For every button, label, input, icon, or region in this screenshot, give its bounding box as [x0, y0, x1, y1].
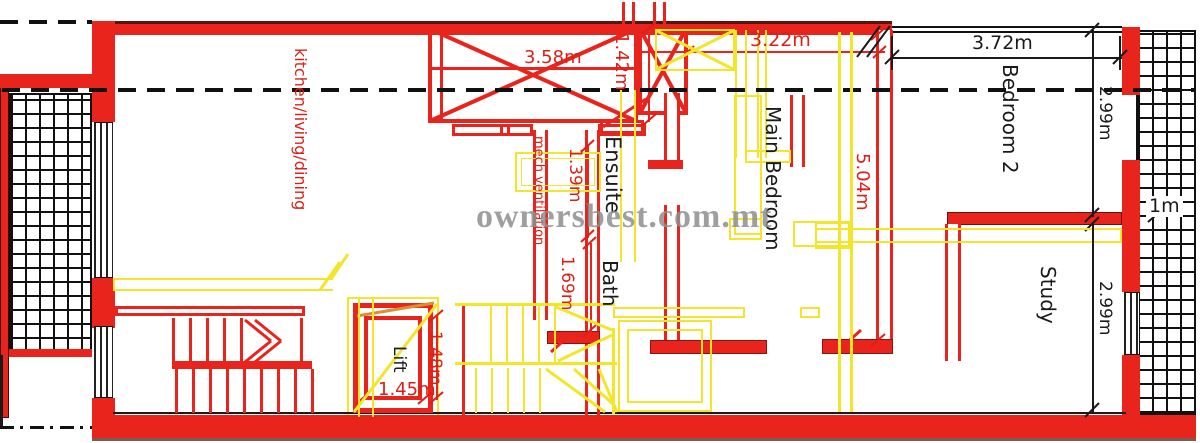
- dim-label-142: 1.42m: [612, 33, 630, 91]
- wall-bottom: [92, 415, 1196, 441]
- wall-stub: [648, 160, 683, 169]
- wall-bed2-study: [947, 212, 1122, 225]
- stair-tread-yellow: [475, 368, 477, 413]
- wall-stub: [663, 2, 666, 24]
- wall-right-mid: [1122, 160, 1140, 292]
- room-label-bath: Bath: [600, 260, 620, 307]
- party-wall-hatch-left: [9, 93, 92, 355]
- window-left-upper: [94, 122, 113, 278]
- stair-tread: [240, 318, 243, 362]
- dim-ext: [1119, 36, 1121, 70]
- desk-return: [815, 222, 853, 249]
- stair-wall-red: [462, 305, 465, 415]
- door-jamb: [600, 120, 644, 134]
- wall-right-upper: [1122, 27, 1140, 95]
- stair-tread: [277, 369, 280, 413]
- room-label-lift: Lift: [390, 346, 407, 373]
- stair-tread-yellow: [538, 306, 540, 362]
- window-right: [1124, 292, 1139, 355]
- dim-label-1m: 1m: [1146, 196, 1183, 217]
- dim-label-169: 1.69m: [558, 256, 575, 310]
- wall-stub: [632, 2, 635, 24]
- dim-line-372: [892, 57, 1122, 59]
- wall-main-bed2: [876, 30, 893, 339]
- stair-landing-line: [172, 361, 312, 369]
- dim-line-299-top: [1092, 30, 1094, 217]
- stair-rail: [115, 306, 305, 316]
- stair-tread-yellow: [554, 306, 556, 362]
- dim-line-299-bottom: [1092, 224, 1094, 412]
- stair-tread-yellow: [522, 306, 524, 362]
- stair-tread-yellow: [523, 368, 525, 413]
- floor-plan: Ensuite Bath Main Bedroom Bedroom 2 Stud…: [0, 0, 1200, 443]
- dim-label-145: 1.45m: [378, 381, 436, 399]
- room-label-kitchen: kitchen/living/dining: [292, 48, 308, 210]
- room-label-bedroom2: Bedroom 2: [1000, 64, 1020, 174]
- dim-label-504: 5.04m: [853, 153, 871, 211]
- room-label-study: Study: [1038, 266, 1058, 324]
- stair-edge-yellow: [612, 328, 615, 414]
- wall-stub: [653, 2, 656, 24]
- stair-tread: [243, 369, 246, 413]
- wall-right-lower: [1122, 355, 1140, 417]
- boundary-dashdot: [0, 426, 92, 429]
- wall-left-lower-line: [0, 355, 3, 427]
- wall-ensuite-upper: [664, 93, 680, 163]
- dim-label-148: 1.48m: [426, 331, 443, 385]
- dim-label-299-bottom: 2.99m: [1096, 281, 1113, 335]
- wall-left-arm: [0, 74, 92, 88]
- shower-ledge: [613, 307, 745, 318]
- stair-tread: [226, 369, 229, 413]
- dim-line-169: [590, 243, 592, 333]
- wall-segment: [92, 278, 115, 328]
- window-left-lower: [94, 326, 113, 398]
- stair-edge-yellow: [455, 362, 617, 365]
- kitchen-counter: [113, 278, 333, 291]
- shower-tray-inner: [627, 329, 703, 403]
- stair-line-yellow: [358, 299, 360, 417]
- stair-tread: [294, 369, 297, 413]
- dim-label-139: 1.39m: [566, 148, 583, 202]
- stair-tread: [175, 369, 178, 413]
- dim-line-142: [648, 28, 650, 122]
- shaft-box: [428, 27, 638, 123]
- wall-bottom-inner-line: [113, 412, 1126, 414]
- stair-tread: [172, 318, 175, 362]
- stair-tread-yellow: [490, 306, 492, 362]
- stair-tread: [260, 369, 263, 413]
- setback-dash-top-left: [0, 20, 92, 24]
- stair-tread: [206, 318, 209, 362]
- stair-tread: [300, 318, 303, 362]
- shaft-box-line: [440, 27, 443, 123]
- fixture-line-yellow: [634, 90, 636, 262]
- side-table-small: [800, 307, 820, 318]
- duct-cap: [500, 124, 533, 136]
- stair-tread-yellow: [539, 368, 541, 413]
- stair-tread: [189, 318, 192, 362]
- wall-bedroom-door-stub: [790, 95, 805, 167]
- wall-stub: [622, 2, 625, 24]
- stair-tread: [223, 318, 226, 362]
- terrace-box: [655, 29, 735, 71]
- wall-return: [822, 339, 893, 354]
- desk: [815, 228, 1122, 243]
- dim-label-372: 3.72m: [972, 34, 1033, 53]
- stair-tread: [311, 369, 314, 413]
- wall-segment: [9, 349, 92, 357]
- dim-label-358: 3.58m: [524, 49, 582, 67]
- wall-study-left: [945, 224, 961, 361]
- stair-tread-yellow: [507, 368, 509, 413]
- dim-ext: [891, 36, 893, 70]
- wall-left-pier: [92, 21, 115, 122]
- stair-line-yellow: [372, 299, 374, 417]
- watermark: ownersbest.com.mt: [476, 200, 773, 234]
- dim-label-299-top: 2.99m: [1096, 86, 1113, 140]
- stair-tread-yellow: [491, 368, 493, 413]
- stair-tread: [192, 369, 195, 413]
- dim-label-322: 3.22m: [750, 31, 811, 50]
- stair-edge-yellow: [455, 303, 615, 306]
- stair-tread-yellow: [506, 306, 508, 362]
- stair-tread: [209, 369, 212, 413]
